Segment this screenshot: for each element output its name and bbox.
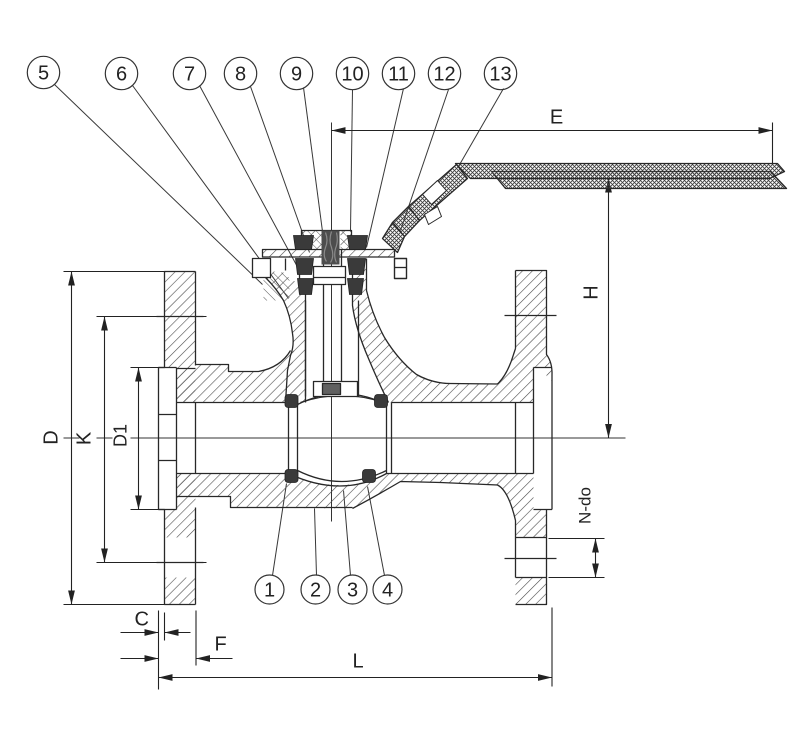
svg-text:10: 10 xyxy=(341,64,363,86)
svg-text:4: 4 xyxy=(382,580,393,602)
svg-text:7: 7 xyxy=(184,64,195,86)
svg-text:1: 1 xyxy=(264,580,275,602)
svg-text:D1: D1 xyxy=(111,424,131,447)
svg-text:2: 2 xyxy=(310,580,321,602)
svg-text:9: 9 xyxy=(291,64,302,86)
svg-text:C: C xyxy=(135,609,149,631)
svg-text:N-do: N-do xyxy=(576,487,595,524)
svg-text:F: F xyxy=(215,634,227,656)
svg-text:6: 6 xyxy=(116,64,127,86)
svg-text:11: 11 xyxy=(388,64,409,86)
svg-text:E: E xyxy=(550,107,563,129)
svg-text:5: 5 xyxy=(38,63,49,85)
svg-text:K: K xyxy=(74,431,96,445)
svg-text:L: L xyxy=(353,651,364,673)
svg-text:H: H xyxy=(581,285,603,299)
svg-text:3: 3 xyxy=(347,580,358,602)
svg-text:8: 8 xyxy=(235,64,246,86)
svg-text:13: 13 xyxy=(489,64,511,86)
svg-text:12: 12 xyxy=(433,64,455,86)
svg-text:D: D xyxy=(41,430,63,444)
